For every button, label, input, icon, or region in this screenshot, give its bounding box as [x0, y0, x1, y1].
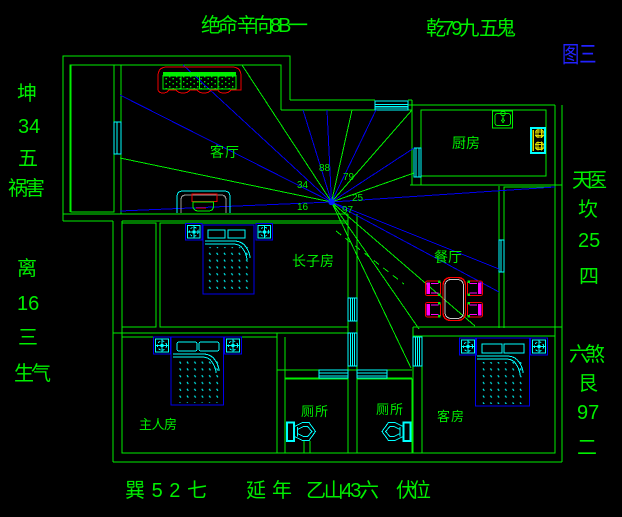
- svg-text:16: 16: [297, 202, 309, 213]
- svg-text:五: 五: [18, 148, 38, 170]
- svg-text:客房: 客房: [437, 409, 464, 424]
- svg-text:乾79九 五鬼: 乾79九 五鬼: [426, 17, 516, 40]
- svg-text:主人房: 主人房: [139, 417, 177, 432]
- svg-text:厨房: 厨房: [452, 135, 480, 151]
- svg-text:六煞: 六煞: [569, 343, 605, 366]
- svg-text:二: 二: [577, 437, 597, 459]
- svg-text:天医: 天医: [572, 170, 607, 192]
- svg-text:绝命 辛向8B一: 绝命 辛向8B一: [201, 14, 308, 37]
- svg-text:88: 88: [319, 163, 331, 174]
- svg-text:长子房: 长子房: [292, 253, 334, 269]
- svg-text:坎: 坎: [578, 198, 598, 221]
- svg-text:巽52七: 巽52七: [125, 479, 207, 502]
- svg-text:离: 离: [17, 257, 37, 280]
- svg-text:艮: 艮: [578, 373, 598, 395]
- svg-text:97: 97: [577, 402, 599, 424]
- svg-text:四: 四: [579, 266, 599, 288]
- svg-text:乙山43六: 乙山43六: [306, 479, 379, 502]
- svg-text:伏位: 伏位: [396, 479, 431, 502]
- svg-text:生气: 生气: [14, 362, 51, 385]
- svg-text:97: 97: [342, 205, 354, 216]
- svg-text:25: 25: [578, 230, 600, 252]
- svg-text:客厅: 客厅: [210, 144, 239, 160]
- svg-text:坤: 坤: [17, 82, 37, 105]
- svg-text:三: 三: [18, 327, 38, 349]
- svg-text:34: 34: [18, 116, 40, 138]
- svg-text:16: 16: [17, 293, 39, 315]
- svg-text:79: 79: [343, 172, 355, 183]
- svg-text:餐厅: 餐厅: [434, 249, 462, 265]
- svg-text:延年: 延年: [246, 479, 292, 502]
- svg-text:祸害: 祸害: [8, 177, 45, 200]
- svg-text:25: 25: [352, 193, 364, 204]
- svg-text:图三: 图三: [562, 43, 596, 68]
- svg-text:34: 34: [297, 180, 309, 191]
- svg-text:厕所: 厕所: [376, 402, 403, 417]
- svg-text:厕所: 厕所: [301, 404, 328, 419]
